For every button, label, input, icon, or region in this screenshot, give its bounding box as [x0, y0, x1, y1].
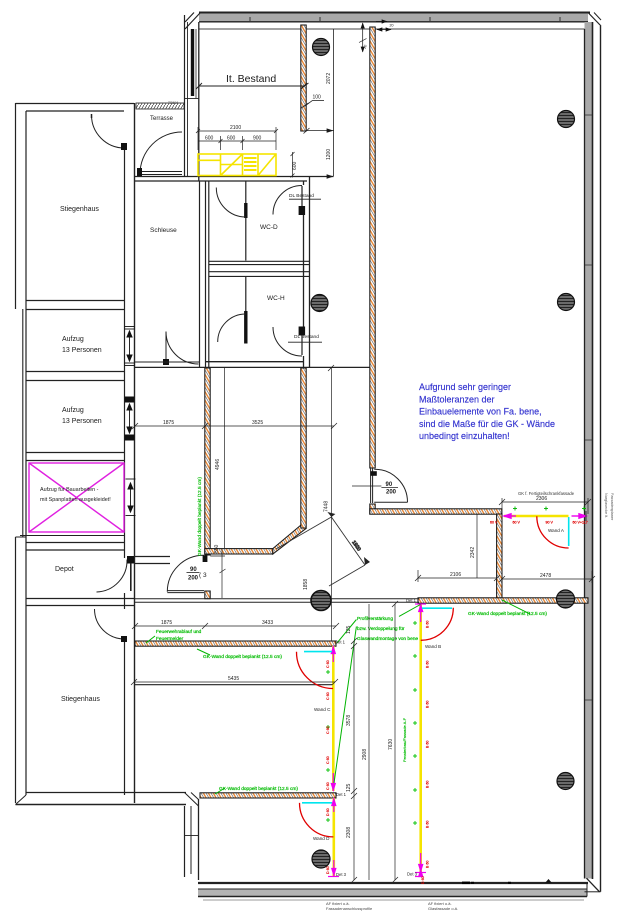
- svg-text:Fassadenanschlussprofile: Fassadenanschlussprofile: [326, 906, 373, 911]
- svg-text:2072: 2072: [326, 73, 332, 84]
- svg-text:60 V: 60 V: [513, 521, 521, 525]
- svg-text:GK-Wand doppelt beplankt (12.5: GK-Wand doppelt beplankt (12.5 cm): [197, 477, 203, 556]
- svg-text:Wand C: Wand C: [314, 707, 331, 712]
- svg-text:Maßtoleranzen der: Maßtoleranzen der: [419, 394, 495, 404]
- svg-text:2478: 2478: [540, 573, 551, 579]
- svg-text:C 60: C 60: [326, 756, 330, 764]
- svg-text:B 60: B 60: [426, 661, 430, 668]
- svg-text:60 V: 60 V: [490, 521, 498, 525]
- svg-text:2106: 2106: [450, 572, 461, 578]
- svg-text:GK-Wand doppelt beplankt (12.5: GK-Wand doppelt beplankt (12.5 cm): [219, 786, 298, 792]
- svg-text:TB596: TB596: [168, 101, 178, 105]
- svg-text:2342: 2342: [470, 547, 476, 558]
- svg-text:C 60: C 60: [326, 660, 330, 668]
- svg-text:600: 600: [205, 136, 214, 142]
- svg-text:1200: 1200: [326, 149, 332, 160]
- svg-text:It. Bestand: It. Bestand: [226, 73, 276, 85]
- svg-text:mit Spanplatten ausgekleidet!: mit Spanplatten ausgekleidet!: [40, 497, 111, 503]
- svg-text:5435: 5435: [228, 676, 239, 682]
- svg-text:Wand A: Wand A: [548, 528, 565, 533]
- svg-text:Aufgrund sehr geringer: Aufgrund sehr geringer: [419, 382, 511, 392]
- svg-text:DL Bestand: DL Bestand: [294, 334, 319, 340]
- svg-text:B 60: B 60: [426, 821, 430, 828]
- svg-text:Wand D: Wand D: [313, 836, 330, 841]
- svg-text:DL Bestand: DL Bestand: [289, 193, 314, 199]
- svg-text:7630: 7630: [388, 739, 394, 750]
- svg-text:3433: 3433: [262, 620, 273, 626]
- svg-text:20: 20: [390, 24, 394, 28]
- svg-text:7448: 7448: [324, 501, 330, 512]
- svg-text:C 60: C 60: [326, 782, 330, 790]
- svg-text:D 60: D 60: [326, 866, 330, 874]
- svg-text:550: 550: [214, 544, 220, 553]
- svg-text:( 3: ( 3: [199, 572, 207, 579]
- svg-text:Nurglasecke lt.: Nurglasecke lt.: [604, 493, 608, 518]
- svg-text:Wand B: Wand B: [425, 644, 441, 649]
- svg-text:Profilverstärkung: Profilverstärkung: [357, 616, 393, 622]
- svg-text:GK-Wand doppelt beplankt (12.5: GK-Wand doppelt beplankt (12.5 cm): [468, 611, 547, 617]
- svg-text:600: 600: [292, 161, 298, 170]
- svg-text:125: 125: [346, 625, 352, 634]
- svg-text:Aufzug: Aufzug: [62, 336, 84, 343]
- svg-text:1875: 1875: [161, 620, 172, 626]
- svg-text:Stiegenhaus: Stiegenhaus: [60, 206, 99, 213]
- svg-text:Aufzug: Aufzug: [62, 407, 84, 414]
- svg-text:125: 125: [346, 783, 352, 792]
- svg-text:200: 200: [386, 490, 397, 496]
- svg-text:GK-Wand doppelt beplankt (12.5: GK-Wand doppelt beplankt (12.5 cm): [203, 654, 282, 660]
- svg-text:B 60: B 60: [426, 741, 430, 748]
- svg-text:B 60: B 60: [426, 621, 430, 628]
- svg-text:Feuermelder: Feuermelder: [156, 636, 184, 642]
- svg-text:13 Personen: 13 Personen: [62, 418, 102, 425]
- svg-text:B 60: B 60: [426, 701, 430, 708]
- svg-text:90 V: 90 V: [546, 521, 554, 525]
- svg-text:Stiegenhaus: Stiegenhaus: [61, 696, 100, 703]
- svg-text:Det 3: Det 3: [336, 872, 347, 877]
- svg-text:200: 200: [188, 576, 199, 582]
- svg-text:B 60: B 60: [426, 861, 430, 868]
- svg-text:2306: 2306: [536, 496, 547, 502]
- svg-text:Fassadenplaner: Fassadenplaner: [610, 493, 614, 521]
- svg-text:2908: 2908: [362, 749, 368, 760]
- svg-text:B 60: B 60: [426, 781, 430, 788]
- svg-text:3525: 3525: [252, 420, 263, 426]
- svg-text:Feuerwehrablauf und: Feuerwehrablauf und: [156, 629, 202, 635]
- svg-text:4946: 4946: [215, 459, 221, 470]
- svg-text:100: 100: [313, 95, 322, 101]
- svg-text:Einbauelemente von Fa. bene,: Einbauelemente von Fa. bene,: [419, 407, 542, 417]
- svg-text:3578: 3578: [346, 715, 352, 726]
- svg-text:Glasfassade o.ä.: Glasfassade o.ä.: [428, 906, 458, 911]
- svg-text:Terrasse: Terrasse: [150, 116, 174, 122]
- svg-text:GK f. Fertigteilschrankfassade: GK f. Fertigteilschrankfassade: [518, 491, 575, 496]
- svg-text:1858: 1858: [303, 579, 309, 590]
- svg-text:sind die Maße für die GK - Wän: sind die Maße für die GK - Wände: [419, 419, 555, 429]
- svg-text:900: 900: [253, 136, 262, 142]
- svg-text:2100: 2100: [230, 125, 241, 131]
- svg-text:unbedingt einzuhalten!: unbedingt einzuhalten!: [419, 431, 510, 441]
- svg-text:D 60: D 60: [421, 876, 425, 884]
- svg-text:Det 1: Det 1: [335, 640, 346, 645]
- svg-text:C 60: C 60: [326, 692, 330, 700]
- svg-text:Det 3: Det 3: [407, 872, 418, 877]
- svg-text:Depot: Depot: [55, 566, 74, 573]
- svg-text:bzw. Verdoppelung für: bzw. Verdoppelung für: [357, 626, 405, 632]
- svg-text:600: 600: [227, 136, 236, 142]
- svg-text:Det 1: Det 1: [406, 598, 417, 603]
- svg-text:WC-D: WC-D: [260, 224, 278, 231]
- svg-text:D 60: D 60: [326, 808, 330, 816]
- svg-text:Aufzug für Bauarbeiten -: Aufzug für Bauarbeiten -: [40, 487, 99, 493]
- svg-text:2308: 2308: [346, 827, 352, 838]
- svg-text:WC-H: WC-H: [267, 295, 285, 302]
- svg-text:60 V+117: 60 V+117: [573, 521, 588, 525]
- svg-text:13 Personen: 13 Personen: [62, 347, 102, 354]
- svg-text:1875: 1875: [163, 420, 174, 426]
- svg-text:Glaswandmontage von bene: Glaswandmontage von bene: [357, 636, 418, 642]
- svg-text:Fensterbau/Fassade A-F: Fensterbau/Fassade A-F: [402, 717, 407, 762]
- svg-text:C 60: C 60: [326, 726, 330, 734]
- svg-text:Schleuse: Schleuse: [150, 227, 177, 234]
